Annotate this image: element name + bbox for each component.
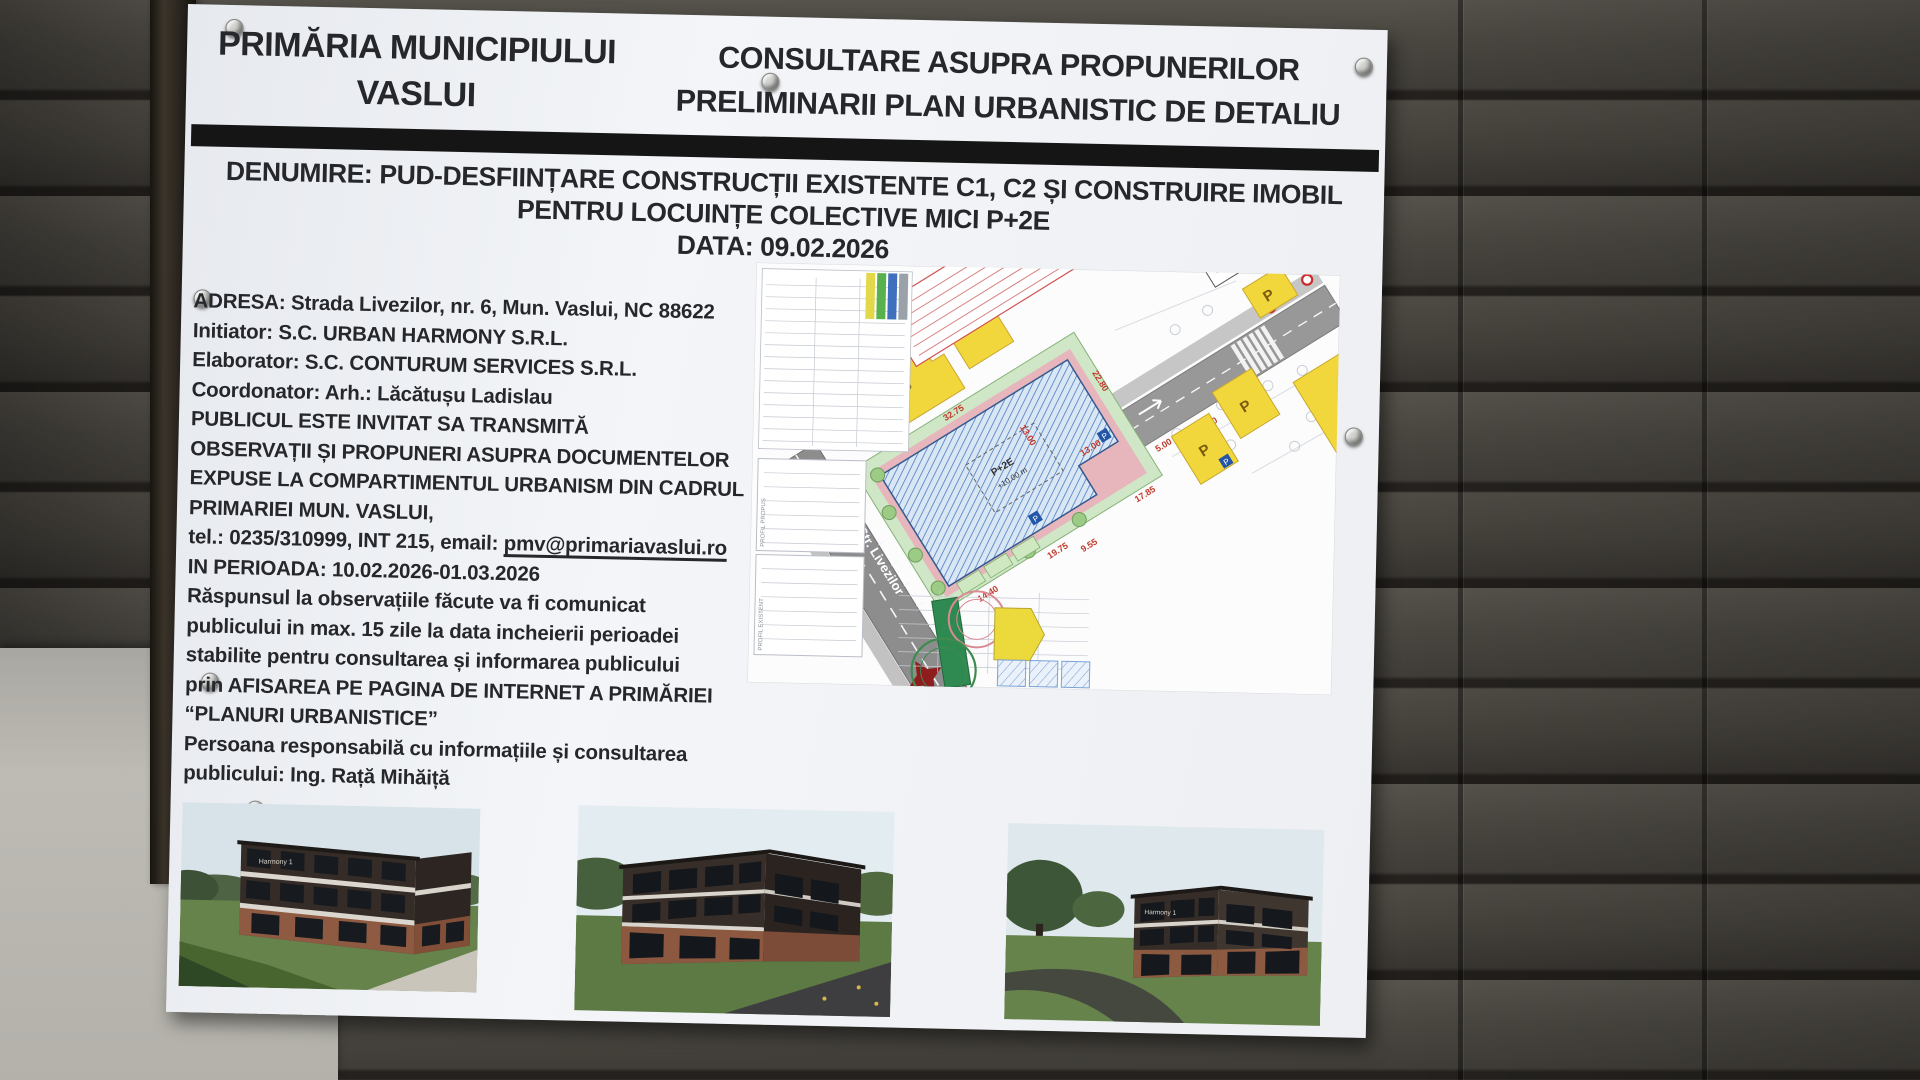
project-info-column: ADRESA: Strada Livezilor, nr. 6, Mun. Va… — [183, 286, 772, 800]
facade-sign-label: Harmony 1 — [259, 858, 293, 866]
svg-text:PROFIL EXISTENT: PROFIL EXISTENT — [758, 598, 765, 651]
plan-profile-proposed: PROFIL PROPUS — [756, 459, 866, 553]
contact-prefix: tel.: 0235/310999, INT 215, email: — [188, 525, 504, 555]
plan-profile-existing: PROFIL EXISTENT — [754, 555, 864, 657]
authority-line2: VASLUI — [196, 66, 637, 122]
project-title: DENUMIRE: PUD-DESFIINȚARE CONSTRUCȚII EX… — [183, 154, 1385, 276]
authority-name: PRIMĂRIA MUNICIPIULUI VASLUI — [196, 20, 638, 122]
contact-email: pmv@primariavaslui.ro — [504, 532, 728, 560]
render-image-left: Harmony 1 — [179, 802, 481, 992]
render-image-right: Harmony 1 — [1004, 822, 1324, 1027]
authority-line1: PRIMĂRIA MUNICIPIULUI — [197, 20, 638, 76]
notice-board: PRIMĂRIA MUNICIPIULUI VASLUI CONSULTARE … — [166, 4, 1388, 1038]
render-image-middle — [574, 805, 894, 1018]
building-side-brick — [763, 931, 860, 963]
blue-hatched-cells — [997, 660, 1090, 688]
fence-plank-seam — [1702, 0, 1707, 1080]
notice-heading: CONSULTARE ASUPRA PROPUNERILOR PRELIMINA… — [638, 34, 1380, 138]
screw-icon — [1345, 427, 1363, 445]
facade-sign-label: Harmony 1 — [1144, 909, 1176, 917]
photographed-notice-board: PRIMĂRIA MUNICIPIULUI VASLUI CONSULTARE … — [0, 0, 1920, 1080]
site-plan-drawing: Str. Livezilor — [747, 262, 1340, 695]
plan-legend-table — [758, 269, 912, 452]
svg-text:PROFIL PROPUS: PROFIL PROPUS — [760, 498, 767, 547]
fence-plank-seam — [1458, 0, 1463, 1080]
